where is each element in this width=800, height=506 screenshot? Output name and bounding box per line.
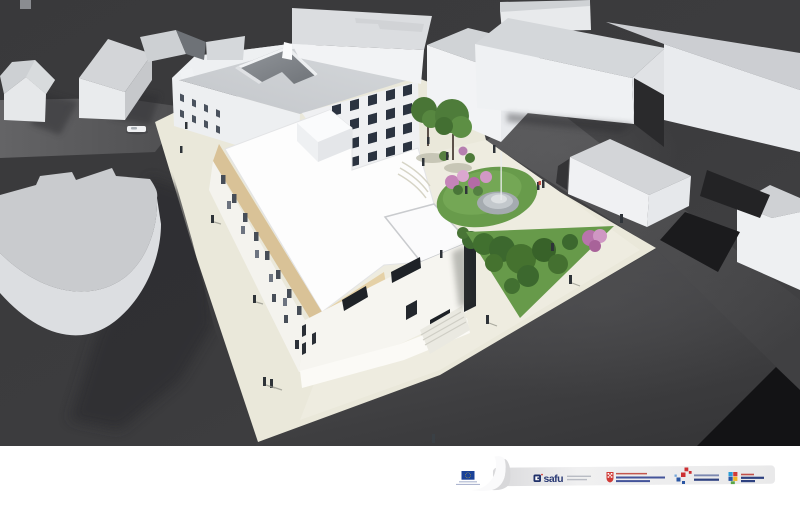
svg-text:safu: safu <box>544 473 564 485</box>
